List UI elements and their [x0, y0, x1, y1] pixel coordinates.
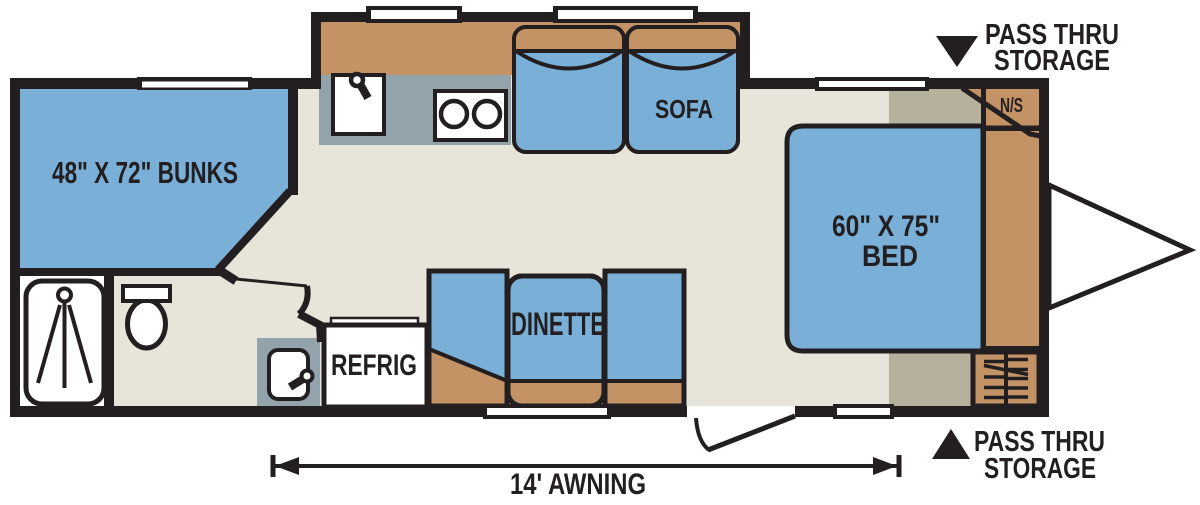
svg-text:BED: BED: [862, 240, 918, 273]
svg-text:14' AWNING: 14' AWNING: [510, 468, 646, 501]
svg-text:SOFA: SOFA: [655, 94, 713, 124]
svg-text:REFRIG: REFRIG: [331, 349, 417, 382]
svg-text:STORAGE: STORAGE: [984, 453, 1096, 485]
svg-text:DINETTE: DINETTE: [511, 306, 605, 342]
svg-text:STORAGE: STORAGE: [994, 45, 1110, 77]
svg-text:60" X 75": 60" X 75": [832, 210, 940, 243]
svg-text:48" X 72" BUNKS: 48" X 72" BUNKS: [52, 155, 238, 190]
